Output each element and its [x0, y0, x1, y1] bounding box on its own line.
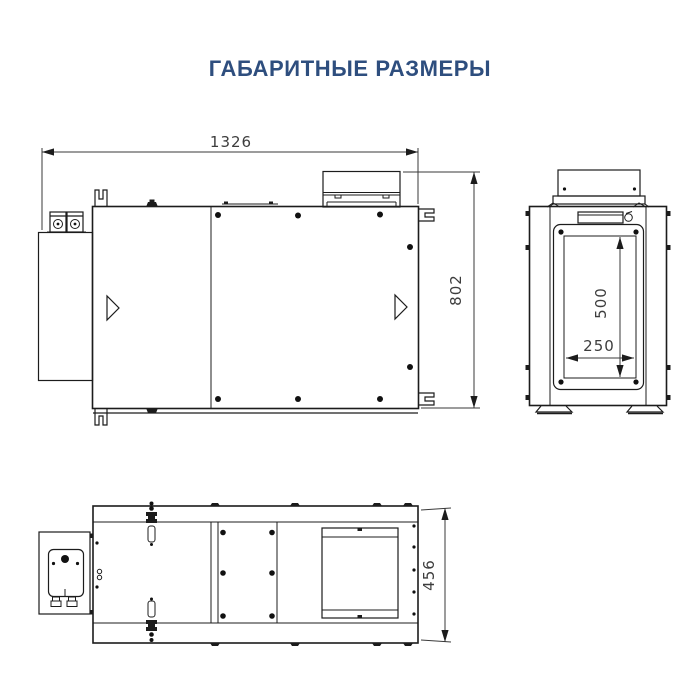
- mounting-bracket-bottom-left: [95, 408, 107, 425]
- filter-latch-top: [146, 502, 157, 547]
- top-edge-strip: [222, 202, 278, 205]
- clamp-tab-bottom: [146, 408, 158, 413]
- rail-clamp-ticks: [210, 503, 413, 646]
- dimension-drawing-page: ГАБАРИТНЫЕ РАЗМЕРЫ 1326 802: [0, 0, 700, 700]
- mounting-bracket-top-left: [95, 190, 107, 207]
- bottom-duct-opening: [322, 528, 398, 618]
- opening-width-dimension-label: 250: [583, 337, 615, 355]
- top-view-left-edge-screws: [95, 541, 101, 588]
- opening-height-dimension: 500: [592, 237, 620, 377]
- top-casing-outline: [93, 506, 418, 643]
- front-casing-outline: [93, 207, 419, 409]
- opening-height-dimension-label: 500: [592, 287, 610, 319]
- airflow-arrow-left-icon: [107, 296, 119, 320]
- top-depth-dimension: 456: [420, 508, 451, 642]
- front-height-dimension: 802: [403, 172, 480, 408]
- front-screws: [215, 212, 413, 403]
- door-handle: [578, 212, 632, 224]
- front-height-dimension-label: 802: [447, 274, 465, 306]
- damper-actuator: [49, 550, 84, 607]
- top-duct-stub: [549, 170, 649, 207]
- front-width-dimension: 1326: [42, 133, 418, 230]
- left-damper-section: [39, 233, 93, 381]
- technical-drawing-canvas: 1326 802: [0, 0, 700, 700]
- cable-glands: [51, 597, 77, 607]
- duct-connector-valves: [47, 212, 86, 232]
- top-depth-dimension-label: 456: [420, 559, 438, 591]
- front-view: 1326 802: [39, 133, 481, 425]
- mounting-bracket-top-right: [418, 209, 434, 221]
- left-duct: [39, 532, 94, 615]
- top-view-right-edge-screws: [412, 524, 415, 615]
- top-view: 456: [39, 502, 451, 647]
- side-view: 500 250: [526, 170, 671, 414]
- mounting-bracket-bottom-right: [418, 393, 434, 405]
- filter-latch-bottom: [146, 598, 157, 643]
- door-latch: [625, 214, 633, 222]
- airflow-arrow-right-icon: [395, 295, 407, 319]
- front-width-dimension-label: 1326: [210, 133, 252, 151]
- control-box: [323, 172, 400, 208]
- opening-width-dimension: 250: [566, 337, 634, 358]
- side-view-feet: [536, 406, 663, 414]
- middle-access-panel: [218, 522, 277, 623]
- clamp-tab-top: [146, 202, 158, 207]
- duct-flange: [553, 196, 645, 204]
